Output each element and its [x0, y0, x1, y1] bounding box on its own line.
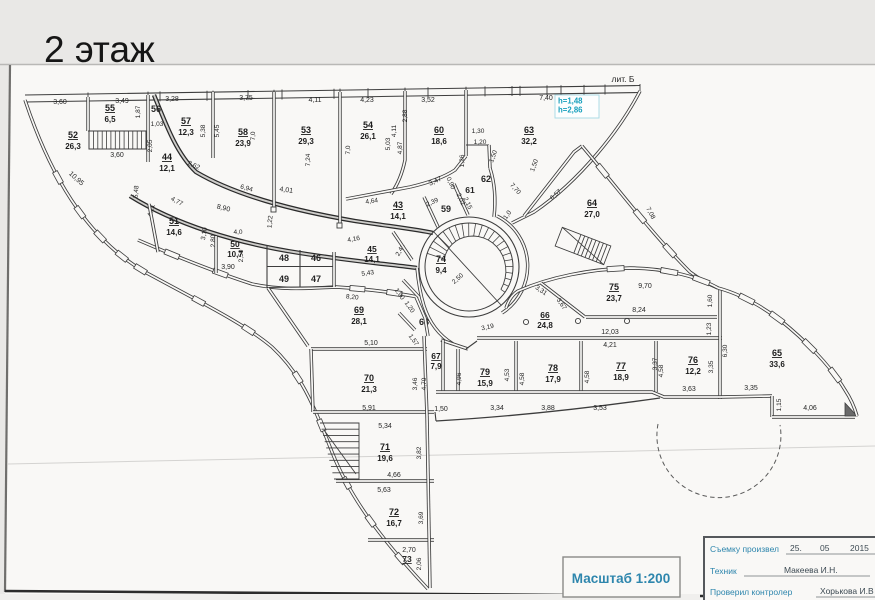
svg-text:4,70: 4,70	[421, 377, 428, 390]
svg-text:5,10: 5,10	[364, 340, 378, 347]
svg-text:33,6: 33,6	[769, 360, 785, 369]
svg-text:45: 45	[367, 244, 377, 254]
svg-text:79: 79	[480, 367, 490, 377]
svg-text:3,60: 3,60	[53, 99, 67, 106]
svg-text:53: 53	[301, 125, 311, 135]
svg-text:3,63: 3,63	[682, 386, 696, 393]
svg-text:60: 60	[434, 125, 444, 135]
svg-text:Съемку произвел: Съемку произвел	[710, 544, 779, 554]
svg-text:17,9: 17,9	[545, 375, 561, 384]
svg-text:3,46: 3,46	[412, 377, 419, 390]
svg-text:57: 57	[181, 116, 191, 126]
svg-text:3,69: 3,69	[418, 511, 425, 524]
svg-text:18,6: 18,6	[431, 137, 447, 146]
svg-text:15,9: 15,9	[477, 379, 493, 388]
svg-text:1,20: 1,20	[474, 139, 487, 146]
svg-text:5,45: 5,45	[214, 124, 221, 137]
svg-text:8,20: 8,20	[345, 293, 359, 301]
svg-text:1,60: 1,60	[707, 294, 714, 307]
svg-text:4,21: 4,21	[603, 342, 617, 349]
svg-text:56: 56	[151, 104, 161, 114]
svg-text:12,3: 12,3	[178, 128, 194, 137]
svg-text:Хорькова И.В: Хорькова И.В	[820, 586, 874, 596]
svg-text:3,34: 3,34	[490, 405, 504, 412]
svg-text:18,9: 18,9	[613, 373, 629, 382]
svg-text:61: 61	[465, 185, 475, 195]
svg-text:2,05: 2,05	[147, 139, 154, 152]
svg-text:47: 47	[311, 274, 321, 284]
svg-text:3,53: 3,53	[593, 405, 607, 412]
svg-text:77: 77	[616, 361, 626, 371]
svg-text:73: 73	[402, 554, 412, 564]
svg-text:5,03: 5,03	[385, 137, 392, 150]
svg-text:6,5: 6,5	[104, 115, 116, 124]
svg-text:2,88: 2,88	[402, 109, 409, 122]
svg-text:3,28: 3,28	[165, 96, 179, 103]
svg-text:4,66: 4,66	[387, 472, 401, 479]
svg-text:лит. Б: лит. Б	[612, 74, 635, 84]
svg-text:h=1,48: h=1,48	[558, 97, 583, 106]
svg-text:1,22: 1,22	[266, 215, 274, 229]
svg-text:4,58: 4,58	[658, 364, 665, 377]
svg-text:27,0: 27,0	[584, 210, 600, 219]
svg-text:43: 43	[393, 200, 403, 210]
svg-text:62: 62	[481, 174, 491, 184]
svg-text:4,11: 4,11	[391, 125, 398, 138]
svg-text:1,26: 1,26	[459, 154, 466, 167]
svg-text:59: 59	[441, 204, 451, 214]
svg-text:Проверил контролер: Проверил контролер	[710, 587, 793, 597]
svg-text:64: 64	[587, 198, 597, 208]
svg-text:55: 55	[105, 103, 115, 113]
svg-text:9,4: 9,4	[435, 266, 447, 275]
svg-text:46: 46	[311, 253, 321, 263]
svg-text:3,49: 3,49	[115, 98, 129, 105]
svg-text:4,11: 4,11	[308, 97, 321, 104]
svg-text:65: 65	[772, 348, 782, 358]
svg-text:7,40: 7,40	[539, 95, 553, 102]
svg-text:29,3: 29,3	[298, 137, 314, 146]
svg-text:19,6: 19,6	[377, 454, 393, 463]
svg-text:Техник: Техник	[710, 566, 737, 576]
svg-text:5,91: 5,91	[362, 405, 376, 412]
svg-text:69: 69	[354, 305, 364, 315]
svg-text:1,23: 1,23	[706, 322, 713, 335]
svg-text:3,37: 3,37	[652, 357, 659, 370]
svg-text:05: 05	[820, 543, 830, 553]
svg-text:51: 51	[169, 216, 179, 226]
svg-text:63: 63	[524, 125, 534, 135]
svg-text:4,23: 4,23	[360, 97, 374, 104]
svg-text:4,53: 4,53	[504, 368, 511, 381]
svg-text:3,75: 3,75	[239, 95, 253, 102]
svg-text:25.: 25.	[790, 543, 802, 553]
svg-text:5,34: 5,34	[378, 423, 392, 430]
svg-text:2,70: 2,70	[402, 547, 416, 554]
svg-text:1,30: 1,30	[472, 128, 485, 135]
svg-text:3,35: 3,35	[744, 385, 758, 392]
svg-text:67: 67	[431, 351, 441, 361]
svg-text:74: 74	[436, 254, 446, 264]
svg-text:58: 58	[238, 127, 248, 137]
svg-text:44: 44	[162, 152, 172, 162]
svg-text:4,0: 4,0	[233, 229, 242, 236]
svg-text:1,03: 1,03	[151, 121, 164, 128]
svg-text:4,96: 4,96	[456, 372, 463, 385]
svg-text:9,70: 9,70	[638, 283, 652, 290]
svg-text:4,58: 4,58	[519, 372, 526, 385]
svg-text:12,03: 12,03	[601, 329, 619, 336]
svg-text:32,2: 32,2	[521, 137, 537, 146]
svg-text:23,7: 23,7	[606, 294, 622, 303]
svg-text:75: 75	[609, 282, 619, 292]
svg-text:26,3: 26,3	[65, 142, 81, 151]
svg-text:71: 71	[380, 442, 390, 452]
svg-text:3,60: 3,60	[110, 152, 124, 159]
svg-text:12,2: 12,2	[685, 367, 701, 376]
svg-text:52: 52	[68, 130, 78, 140]
svg-text:3,88: 3,88	[541, 405, 555, 412]
svg-text:5,38: 5,38	[200, 124, 207, 137]
svg-text:Масштаб 1:200: Масштаб 1:200	[572, 571, 670, 586]
svg-text:4,58: 4,58	[584, 370, 591, 383]
svg-text:2,06: 2,06	[416, 557, 423, 570]
svg-text:1,15: 1,15	[776, 398, 783, 411]
svg-text:5,48: 5,48	[132, 185, 140, 199]
svg-text:7,24: 7,24	[305, 153, 312, 166]
svg-text:7,0: 7,0	[345, 145, 352, 154]
svg-text:2,50: 2,50	[238, 249, 245, 262]
svg-text:76: 76	[688, 355, 698, 365]
svg-text:48: 48	[279, 253, 289, 263]
svg-text:16,7: 16,7	[386, 519, 402, 528]
svg-text:3,52: 3,52	[421, 97, 435, 104]
svg-text:3,35: 3,35	[708, 360, 715, 373]
svg-text:2015: 2015	[850, 543, 869, 553]
svg-text:Макеева И.Н.: Макеева И.Н.	[784, 565, 838, 575]
svg-text:54: 54	[363, 120, 373, 130]
svg-text:4,06: 4,06	[803, 405, 817, 412]
svg-text:26,1: 26,1	[360, 132, 376, 141]
svg-text:28,1: 28,1	[351, 317, 367, 326]
svg-text:50: 50	[230, 239, 240, 249]
svg-text:12,1: 12,1	[159, 164, 175, 173]
svg-text:14,6: 14,6	[166, 228, 182, 237]
svg-text:8,24: 8,24	[632, 307, 646, 314]
svg-text:1,87: 1,87	[135, 105, 142, 118]
svg-text:24,8: 24,8	[537, 321, 553, 330]
svg-text:6,30: 6,30	[722, 344, 729, 357]
svg-text:14,1: 14,1	[364, 255, 380, 264]
svg-text:7,9: 7,9	[430, 362, 442, 371]
svg-text:1,50: 1,50	[434, 406, 448, 413]
svg-text:4,87: 4,87	[397, 141, 404, 154]
svg-text:2 этаж: 2 этаж	[44, 29, 155, 70]
svg-text:23,9: 23,9	[235, 139, 251, 148]
svg-text:21,3: 21,3	[361, 385, 377, 394]
svg-text:66: 66	[540, 310, 550, 320]
svg-text:49: 49	[279, 274, 289, 284]
svg-text:3,82: 3,82	[416, 446, 423, 459]
svg-text:14,1: 14,1	[390, 212, 406, 221]
svg-text:78: 78	[548, 363, 558, 373]
svg-text:7,0: 7,0	[250, 131, 257, 140]
svg-text:3,90: 3,90	[221, 264, 235, 271]
svg-text:72: 72	[389, 507, 399, 517]
svg-text:70: 70	[364, 373, 374, 383]
svg-text:5,63: 5,63	[377, 487, 391, 494]
svg-text:h=2,86: h=2,86	[558, 106, 583, 115]
